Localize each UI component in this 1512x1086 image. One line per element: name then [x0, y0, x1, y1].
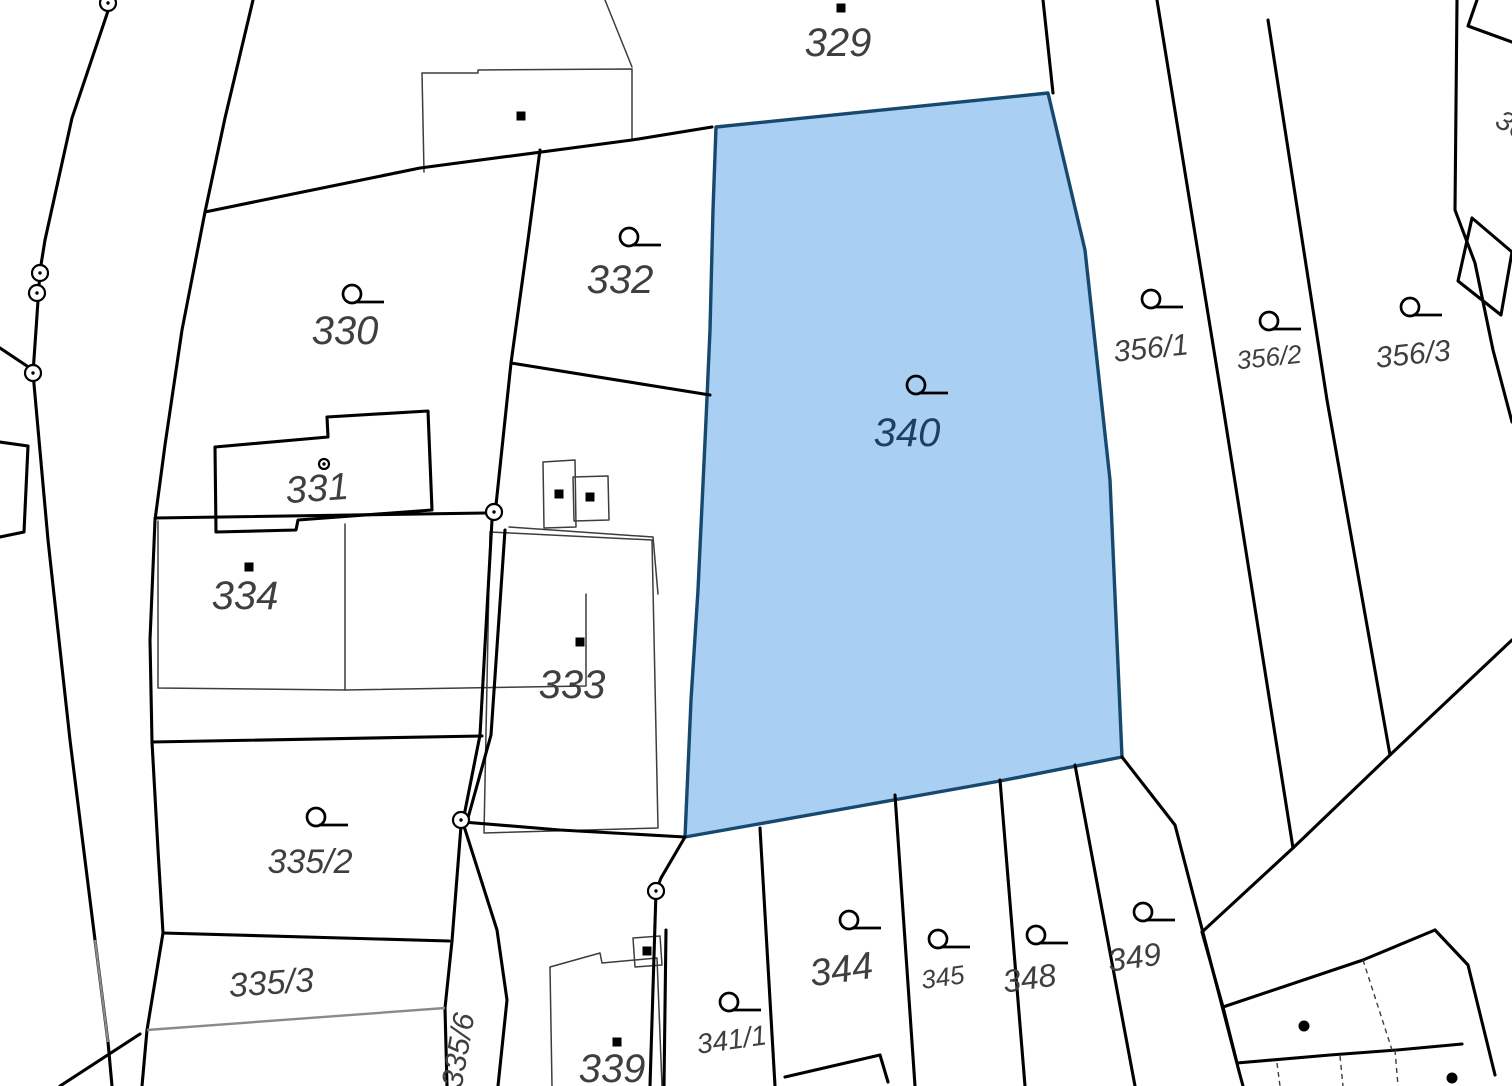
parcel-label-339: 339	[579, 1047, 646, 1086]
highlighted-parcel-340[interactable]	[685, 93, 1122, 837]
bottom-left-diagonal	[60, 1034, 140, 1086]
cluster-dash-b	[1277, 1063, 1280, 1086]
boundary-330-top	[205, 127, 712, 212]
boundary-marker-dot	[322, 462, 325, 465]
parcel-label-335-3: 335/3	[227, 961, 315, 1005]
landuse-symbol-icon-335/2	[307, 808, 325, 826]
landuse-symbol-icon-356/2	[1260, 312, 1278, 330]
landuse-symbol-icon-349	[1134, 903, 1152, 921]
building-rotated-36	[1458, 218, 1512, 315]
boundary-339-east	[650, 837, 685, 1086]
parcel-label-340: 340	[874, 411, 941, 455]
boundary-344-notch	[785, 1055, 888, 1082]
parcel-label-332: 332	[587, 258, 654, 302]
cadastral-map[interactable]: 329330331332333334335/2335/3335/63393403…	[0, 0, 1512, 1086]
boundary-marker-dot	[106, 1, 109, 4]
left-edge-sliver	[0, 442, 28, 537]
boundary-356-2-3	[1268, 20, 1390, 755]
landuse-symbol-icon-344	[840, 911, 858, 929]
parcel-label-356-2: 356/2	[1235, 339, 1303, 376]
cluster-dash-c	[1340, 1056, 1343, 1086]
boundary-marker-dot	[654, 889, 657, 892]
building-dot-icon	[586, 493, 595, 502]
building-dot-icon	[576, 638, 585, 647]
building-dot-icon	[517, 112, 526, 121]
parcel-label-335-6: 335/6	[436, 1010, 482, 1086]
road-diagonal-southeast	[1202, 640, 1512, 932]
boundary-340-top-stub	[1043, 0, 1053, 93]
parcel-label-356-3: 356/3	[1374, 334, 1452, 375]
boundary-marker-dot	[492, 510, 495, 513]
cluster-bottom	[1237, 1044, 1462, 1063]
boundary-345-348	[1000, 780, 1025, 1086]
parcel-label-329: 329	[805, 21, 872, 65]
building-dot-icon	[643, 947, 652, 956]
parcel-label-335-2: 335/2	[267, 843, 352, 881]
building-dot-icon	[245, 563, 254, 572]
landuse-symbol-icon-345	[929, 930, 947, 948]
parcel-label-356-1: 356/1	[1112, 328, 1190, 369]
cluster-east	[1435, 930, 1495, 1075]
boundary-329-west	[605, 0, 632, 67]
boundary-335-3-bottom	[147, 1008, 445, 1030]
boundary-marker-dot	[35, 291, 38, 294]
boundary-335-2-bottom	[163, 933, 449, 941]
point-dot-icon	[1447, 1073, 1458, 1084]
cluster-dash-a	[1363, 960, 1393, 1053]
parcel-label-341-1: 341/1	[695, 1019, 769, 1059]
boundary-341-west	[664, 930, 666, 1086]
landuse-symbol-icon-348	[1027, 926, 1045, 944]
boundary-marker-dot	[459, 818, 462, 821]
boundary-334-bottom	[152, 736, 482, 742]
parcel-label-345: 345	[919, 959, 967, 995]
boundary-marker-dot	[31, 371, 34, 374]
left-edge-tick	[0, 348, 30, 368]
cluster-ridge	[1223, 930, 1435, 1007]
building-dot-icon	[613, 1038, 622, 1047]
landuse-symbol-icon-356/3	[1401, 298, 1419, 316]
boundary-356-1-2	[1157, 0, 1293, 848]
building-dot-icon	[837, 4, 846, 13]
landuse-symbol-icon-341/1	[720, 993, 738, 1011]
parcel-label-344: 344	[807, 945, 876, 995]
parcel-label-331: 331	[284, 466, 350, 512]
parcel-label-330: 330	[312, 309, 379, 353]
boundary-344-345	[895, 795, 915, 1086]
landuse-symbol-icon-330	[343, 285, 361, 303]
point-dot-icon	[1299, 1021, 1310, 1032]
boundary-348-349	[1075, 765, 1135, 1086]
parcel-label-36: 36	[1491, 104, 1512, 147]
parcel-label-334: 334	[212, 574, 279, 618]
building-dot-icon	[555, 490, 564, 499]
building-top-center	[422, 69, 632, 172]
road-west-outer	[33, 5, 112, 1086]
parcel-label-348: 348	[1001, 957, 1059, 1000]
boundary-332-west	[496, 150, 540, 505]
cluster-dash-d	[1395, 1050, 1398, 1086]
boundary-332-333	[511, 363, 710, 395]
parcel-label-349: 349	[1106, 936, 1164, 979]
gray-patch-road	[95, 940, 108, 1042]
corner-fragment-northeast	[1468, 0, 1512, 42]
boundary-356-3-east	[1455, 0, 1512, 422]
cluster-west	[1202, 932, 1237, 1063]
landuse-symbol-icon-332	[620, 228, 638, 246]
boundary-marker-dot	[38, 271, 41, 274]
boundary-333-bottom	[463, 822, 685, 837]
landuse-symbol-icon-356/1	[1142, 290, 1160, 308]
parcel-label-333: 333	[539, 663, 606, 707]
map-canvas[interactable]: 329330331332333334335/2335/3335/63393403…	[0, 0, 1512, 1086]
